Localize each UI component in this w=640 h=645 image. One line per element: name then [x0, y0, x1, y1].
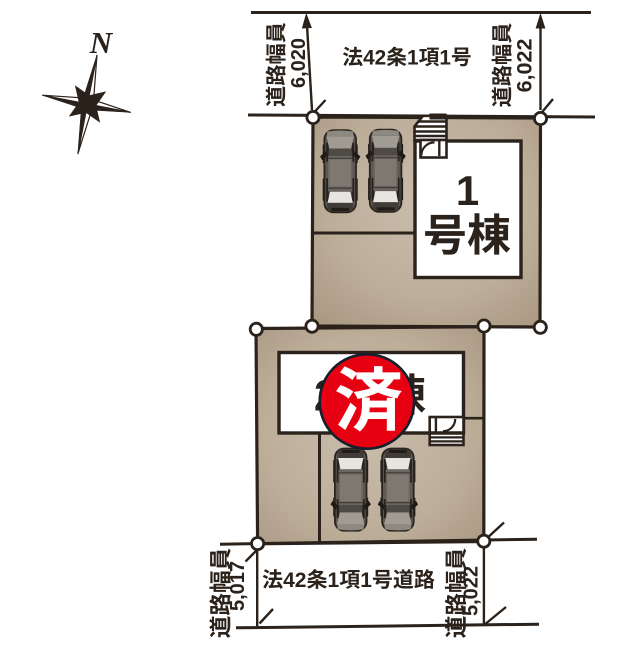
svg-text:1: 1: [456, 167, 479, 214]
svg-text:42: 42: [283, 569, 306, 592]
svg-text:5,022: 5,022: [461, 566, 483, 616]
svg-text:1: 1: [439, 46, 451, 69]
svg-text:1: 1: [360, 569, 372, 592]
svg-text:5,017: 5,017: [227, 561, 249, 611]
svg-text:42: 42: [363, 46, 386, 69]
svg-text:1: 1: [328, 569, 340, 592]
svg-text:N: N: [89, 25, 114, 60]
svg-text:6,020: 6,020: [288, 38, 310, 88]
svg-text:1: 1: [407, 46, 419, 69]
svg-text:6,022: 6,022: [513, 39, 537, 93]
